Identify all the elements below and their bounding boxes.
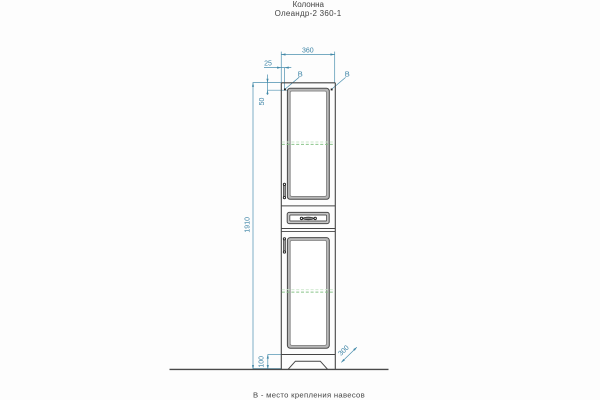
svg-text:25: 25 — [264, 61, 272, 68]
svg-text:В: В — [298, 69, 303, 78]
svg-text:50: 50 — [259, 98, 266, 106]
svg-text:Олеандр-2 360-1: Олеандр-2 360-1 — [275, 9, 342, 18]
svg-text:1910: 1910 — [245, 217, 252, 233]
svg-text:100: 100 — [259, 356, 266, 368]
svg-text:В: В — [345, 69, 350, 78]
svg-text:В - место крепления навесов: В - место крепления навесов — [253, 390, 365, 399]
svg-text:360: 360 — [302, 47, 314, 54]
svg-text:Колонна: Колонна — [293, 0, 325, 9]
